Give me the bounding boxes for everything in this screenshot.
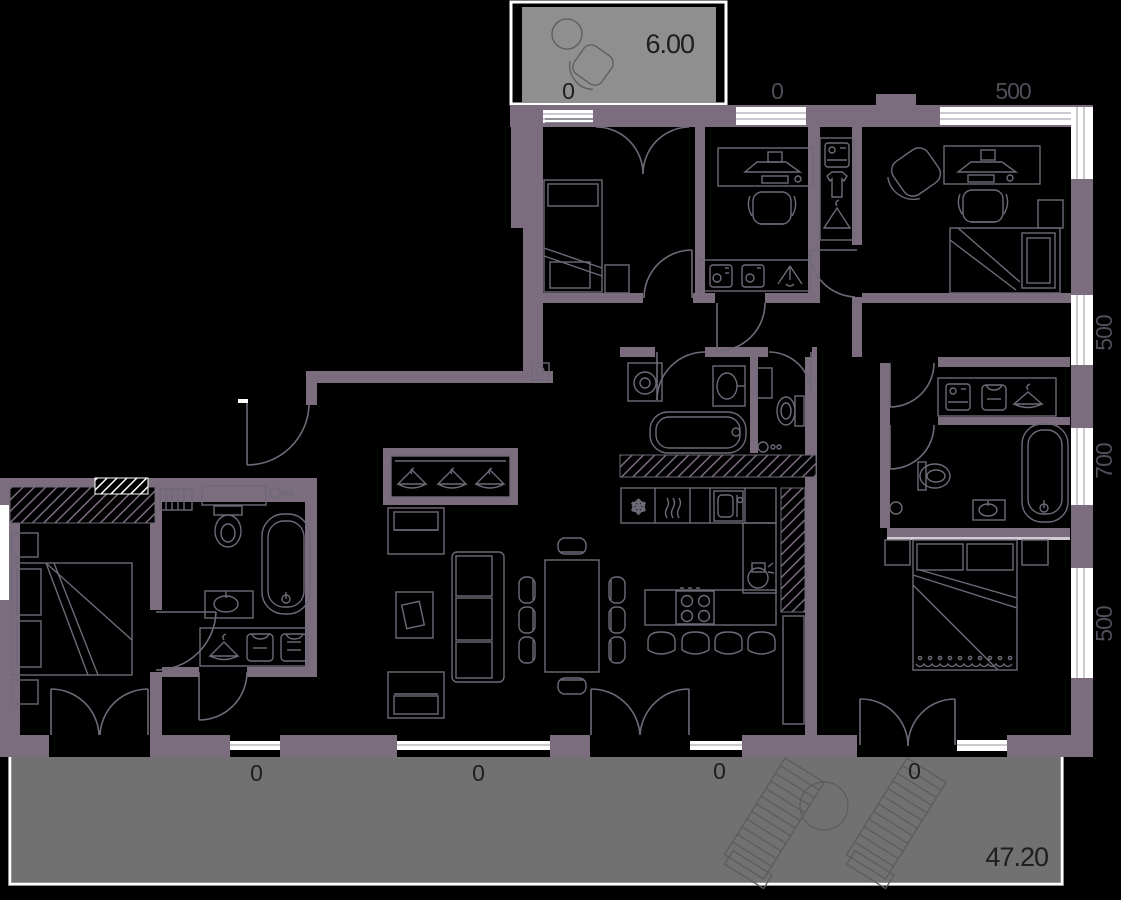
hanger-icon — [210, 634, 238, 660]
appliance-icon — [946, 384, 970, 410]
double-bed-icon — [913, 540, 1017, 670]
pc-tower-icon — [710, 265, 732, 287]
keyboard-icon — [762, 176, 788, 183]
french-door-living — [591, 689, 689, 735]
wall-bath3-top — [938, 357, 1070, 367]
toilet-icon — [918, 462, 950, 490]
window-top-2 — [940, 107, 1091, 125]
faucet-icon — [758, 442, 781, 452]
french-door-balcony — [596, 127, 689, 174]
duct-hatch-vertical — [781, 488, 805, 612]
office-chair-icon — [748, 192, 795, 224]
linen-shelf — [200, 628, 308, 666]
sink-icon — [205, 591, 253, 618]
nightstand-icon — [885, 540, 910, 565]
bed-fringe — [916, 664, 1012, 667]
floor-plan-canvas: ❄ — [0, 0, 1121, 900]
nightstand-icon — [1038, 200, 1063, 228]
dining-chair-icon — [609, 577, 625, 603]
toilet-icon — [214, 506, 242, 547]
toilet-icon — [777, 396, 804, 426]
bottom-zero-1: 0 — [250, 760, 262, 786]
french-door-left-bedroom — [51, 689, 148, 735]
dining-table-icon — [545, 560, 599, 672]
window-top-1 — [736, 107, 806, 125]
balcony-door-track — [543, 110, 593, 123]
bathtub-icon — [650, 412, 746, 453]
office-room — [700, 148, 813, 291]
kitchen: ❄ — [621, 488, 804, 724]
armchair-icon — [388, 508, 444, 554]
appliance-icon — [825, 143, 849, 167]
oven-icon — [666, 498, 681, 518]
right-500-lower-label: 500 — [1091, 606, 1117, 642]
living-room — [383, 448, 625, 718]
top-zero-label: 0 — [771, 78, 783, 104]
tripod-icon — [778, 266, 802, 286]
tall-cabinet-icon — [783, 616, 804, 724]
right-700-label: 700 — [1091, 443, 1117, 479]
bottom-zero-4: 0 — [908, 758, 920, 784]
bathroom-center — [628, 363, 746, 453]
bed-fringe-dots — [918, 656, 1011, 659]
towel-icon — [982, 385, 1006, 410]
dining-chair-icon — [558, 538, 586, 554]
window-right-1 — [1071, 295, 1093, 365]
top-500-label: 500 — [995, 78, 1031, 104]
floor-plan-svg: ❄ — [0, 0, 1121, 900]
hall-wardrobe-niche — [820, 138, 854, 240]
duct-hatch-horizontal — [620, 455, 816, 477]
terrace — [8, 757, 1064, 888]
desk-icon — [718, 148, 813, 186]
balcony-zero-label: 0 — [562, 78, 574, 104]
wc-shelf-icon — [757, 368, 772, 398]
window-right-2 — [1071, 428, 1093, 505]
master-bedroom — [885, 540, 1048, 670]
wardrobe-hatch-bright — [95, 478, 148, 494]
sink-icon — [973, 500, 1005, 520]
stove-icon — [676, 588, 714, 624]
interior-walls — [150, 127, 1071, 757]
floor-drain-icon — [890, 502, 902, 514]
bathtub-icon — [262, 514, 310, 614]
wall-entry-jamb — [306, 383, 317, 405]
dining-chair-icon — [519, 607, 535, 633]
dining-chair-icon — [519, 577, 535, 603]
wall-top-pier — [876, 94, 916, 106]
side-cabinet-icon — [605, 265, 629, 293]
wall-leftbed-divider-b — [150, 672, 162, 757]
kitchen-sink-icon — [714, 491, 743, 521]
door-office — [717, 303, 765, 351]
window-left — [0, 505, 9, 600]
entry-jamb-cap — [238, 399, 248, 403]
bottom-zero-3: 0 — [713, 758, 725, 784]
coat-rack — [383, 448, 518, 505]
door-bath3-outer — [890, 363, 934, 407]
monitor-icon — [958, 162, 1016, 172]
office-shelf — [700, 260, 810, 291]
towel-icon — [247, 634, 273, 661]
wall-bedroom2-bottom — [862, 293, 1071, 303]
fridge-snowflake-icon: ❄ — [630, 497, 646, 519]
coffee-table-icon — [396, 592, 433, 638]
window-right-corner — [1071, 107, 1093, 179]
door-bath3-inner — [890, 425, 934, 469]
kitchen-island — [645, 588, 776, 654]
towel-icon — [281, 634, 307, 661]
dining-chair-icon — [609, 607, 625, 633]
wall-corridor-right — [880, 363, 890, 528]
dining-chair-icon — [609, 637, 625, 663]
bar-stool-icon — [648, 632, 675, 654]
armchair-icon — [388, 672, 444, 718]
monitor-icon — [745, 162, 800, 172]
terrace-area-label: 47.20 — [985, 842, 1048, 872]
wc-center — [757, 368, 804, 452]
bathtub-icon — [1022, 424, 1068, 522]
door-bedroom1 — [644, 250, 692, 298]
bar-stool-icon — [682, 632, 709, 654]
wall-kitchen-right — [805, 357, 817, 613]
bed-icon — [950, 228, 1060, 293]
nightstand-icon — [1022, 540, 1048, 565]
door-bath2 — [199, 672, 247, 720]
shelf-niche — [938, 378, 1056, 416]
dining-chair-icon — [558, 678, 586, 694]
bathroom-left — [200, 486, 310, 666]
keyboard-icon — [968, 175, 994, 182]
shirt-icon — [827, 172, 847, 197]
bar-stool-icon — [748, 632, 775, 654]
door-bathroom-center — [657, 352, 705, 400]
entry-door — [247, 403, 309, 465]
coffee-machine-icon — [748, 563, 774, 588]
armchair-icon — [881, 144, 947, 209]
wall-left-upper-b — [523, 228, 543, 383]
bottom-zero-2: 0 — [472, 760, 484, 786]
hanger-icon — [824, 200, 850, 228]
wall-left-upper-a — [511, 105, 543, 228]
hanger-icon — [1014, 384, 1042, 408]
door-left-bedroom — [156, 612, 216, 670]
bar-stool-icon — [715, 632, 742, 654]
right-500-upper-label: 500 — [1091, 315, 1117, 351]
wall-bath3-bottom — [887, 528, 1070, 537]
single-bed-icon — [544, 180, 602, 292]
windows — [0, 107, 1093, 678]
sofa-icon — [452, 552, 504, 682]
door-wc — [769, 352, 811, 394]
bedroom-top-right — [881, 144, 1063, 293]
bedroom-top-left — [544, 119, 629, 293]
wall-hall-top — [306, 371, 553, 383]
desk-icon — [944, 146, 1040, 184]
double-bed-icon — [12, 563, 132, 675]
pc-tower-icon — [742, 265, 764, 287]
window-right-3 — [1071, 568, 1093, 678]
dining-chair-icon — [519, 637, 535, 663]
bathroom-right — [890, 378, 1068, 522]
mouse-icon — [795, 176, 801, 182]
balcony-area-label: 6.00 — [645, 29, 694, 59]
office-chair-icon — [958, 190, 1007, 222]
mouse-icon — [1007, 175, 1013, 181]
sink-icon — [713, 366, 745, 406]
wall-master-left — [805, 613, 817, 735]
